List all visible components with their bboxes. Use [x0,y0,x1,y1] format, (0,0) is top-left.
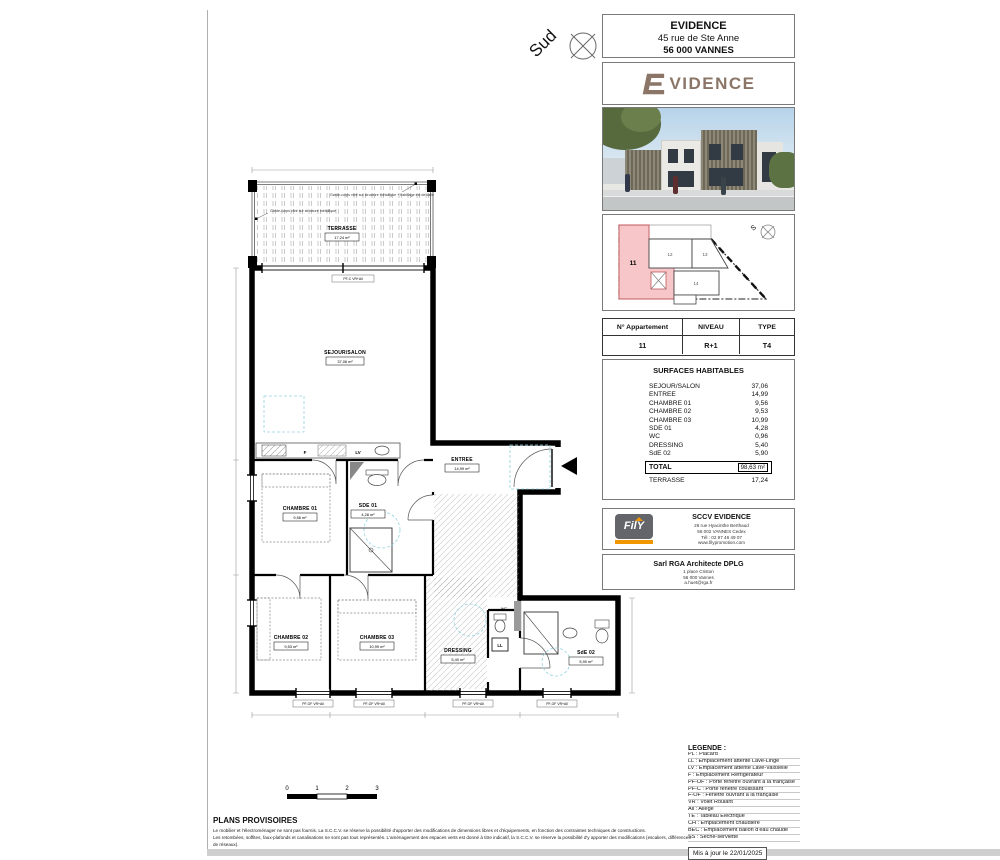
total-value: 98,63 m² [738,463,768,472]
svg-text:S: S [750,224,758,233]
developer-block: FilY SCCV EVIDENCE 26 rue Hyacinthe Bert… [602,508,795,550]
legend-item: F : Emplacement Réfrigérateur [688,773,800,780]
duct-shaft [514,601,521,631]
svg-text:Sud: Sud [525,26,560,61]
legend-item: All : Allège [688,807,800,814]
svg-text:11: 11 [630,260,637,267]
legend-title: LEGENDE : [688,745,800,752]
fily-logo-word: FilY [624,520,644,532]
apartment-level: R+1 [683,336,740,354]
key-plan-unit-13 [692,239,728,268]
surface-area: 9,56 [755,400,768,408]
photo-person [673,176,678,194]
surface-area: 14,99 [751,391,768,399]
svg-text:PF-C VR+All: PF-C VR+All [343,277,363,281]
photo-white-block [661,140,701,192]
svg-text:Garde-corps vitré sur structur: Garde-corps vitré sur structure métalliq… [330,193,434,197]
room-label-sejour: SEJOUR/SALON 37,06 m² [324,350,366,365]
surface-room: CHAMBRE 01 [649,400,691,408]
room-label-sde2: SdE 02 5,90 m² [569,650,603,665]
legend-item: LV : Emplacement attente Lave-Vaisselle [688,766,800,773]
surface-room: WC [649,433,660,441]
svg-text:9,53 m²: 9,53 m² [284,644,298,649]
project-address-line2: 56 000 VANNES [603,45,794,56]
disclaimer-title: PLANS PROVISOIRES [213,816,691,825]
architect-name: Sarl RGA Architecte DPLG [603,559,794,568]
evidence-logo: VIDENCE [602,62,795,105]
svg-text:2: 2 [345,786,349,792]
svg-text:LV: LV [355,450,360,455]
total-label: TOTAL [649,464,672,471]
room-label-sde1: SDE 01 4,28 m² [351,503,385,518]
surface-room: SdE 02 [649,450,671,458]
svg-text:13: 13 [702,252,708,257]
legend: LEGENDE : PL : Placard LL : Emplacement … [688,745,800,860]
wc-label: WC [501,606,508,611]
legend-item: LL : Emplacement attente Lave-Linge [688,759,800,766]
disclaimer-line: Les retombées, soffites, faux-plafonds e… [213,834,691,848]
surface-area: 9,53 [755,408,768,416]
key-plan-compass-icon: S [750,224,775,239]
svg-text:PF-OF VR+All: PF-OF VR+All [546,702,568,706]
updated-date-badge: Mis à jour le 22/01/2025 [688,847,767,860]
apartment-number: 11 [603,336,683,354]
fily-logo: FilY [615,514,655,544]
photo-person [625,174,630,192]
surface-row: DRESSING 5,40 [649,442,768,450]
terrasse-value: 17,24 [751,477,768,484]
surface-row: SDE 01 4,28 [649,425,768,433]
surface-room: CHAMBRE 03 [649,417,691,425]
dressing-hatch [426,578,487,691]
terrace: TERRASSE 17,24 m² Garde-corps vitré sur … [248,180,436,268]
sde2-fixtures [524,612,609,654]
svg-text:PF-OF VR+All: PF-OF VR+All [302,702,324,706]
svg-text:DRESSING: DRESSING [444,648,472,654]
svg-text:9,56 m²: 9,56 m² [293,515,307,520]
surface-row: CHAMBRE 01 9,56 [649,400,768,408]
surfaces-title: SURFACES HABITABLES [603,366,794,375]
svg-text:CHAMBRE 03: CHAMBRE 03 [360,635,395,641]
svg-text:0: 0 [285,786,289,792]
entry-door [510,445,562,489]
kitchen: F LV [256,443,400,458]
svg-text:PF-OF VR+All: PF-OF VR+All [462,702,484,706]
surface-row: CHAMBRE 03 10,99 [649,417,768,425]
surface-area: 0,96 [755,433,768,441]
apartment-type: T4 [740,336,794,354]
bay-label: PF-C VR+All [332,275,374,282]
svg-text:TERRASSE: TERRASSE [328,226,357,232]
legend-item: PL : Placard [688,752,800,759]
legend-item: PF-C : Porte fenêtre coulissant [688,787,800,794]
svg-text:12: 12 [667,252,673,257]
fily-logo-bar [615,540,653,544]
developer-name: SCCV EVIDENCE [655,512,788,521]
sde1-fixtures [350,470,392,572]
apartment-table: N° Appartement NIVEAU TYPE 11 R+1 T4 [602,318,795,356]
legend-item: PF-OF : Porte fenêtre ouvrant à la franç… [688,780,800,787]
svg-text:F: F [304,450,307,455]
surfaces-table: SURFACES HABITABLES SEJOUR/SALON 37,06 E… [602,359,795,500]
photo-person [721,177,726,195]
svg-text:14,99 m²: 14,99 m² [454,466,470,471]
surface-area: 5,90 [755,450,768,458]
photo-hedge [769,152,795,188]
surface-row: ENTREE 14,99 [649,391,768,399]
photo-road [603,196,795,211]
surface-row: CHAMBRE 02 9,53 [649,408,768,416]
legend-item: F-OF : Fenêtre ouvrant à la française [688,793,800,800]
svg-text:SDE 01: SDE 01 [359,503,377,509]
surface-room: DRESSING [649,442,683,450]
svg-text:LL: LL [497,643,503,648]
floor-plan: Sud TERRASSE 17,24 m² Garde-corps vitré … [0,0,1000,857]
legend-item: SS : Sèche-serviette [688,835,800,842]
surface-row: WC 0,96 [649,433,768,441]
surfaces-total-row: TOTAL 98,63 m² [645,461,772,474]
room-label-chambre1: CHAMBRE 01 9,56 m² [283,506,318,521]
room-label-chambre3: CHAMBRE 03 10,99 m² [360,635,395,650]
svg-text:SEJOUR/SALON: SEJOUR/SALON [324,350,366,356]
svg-text:SdE 02: SdE 02 [577,650,595,656]
evidence-logo-word: VIDENCE [669,74,755,94]
developer-website: www.filypromotion.com [655,540,788,546]
legend-item: VR : Volet Roulant [688,800,800,807]
surface-room: SDE 01 [649,425,672,433]
svg-text:CHAMBRE 02: CHAMBRE 02 [274,635,309,641]
surface-row: SdE 02 5,90 [649,450,768,458]
south-compass-icon: Sud [525,26,596,61]
surface-area: 37,06 [751,383,768,391]
architect-email: a.huet@rga.fr [603,580,794,586]
svg-text:3: 3 [375,786,379,792]
surface-room: SEJOUR/SALON [649,383,700,391]
room-label-chambre2: CHAMBRE 02 9,53 m² [274,635,309,650]
project-address-block: EVIDENCE 45 rue de Ste Anne 56 000 VANNE… [602,14,795,58]
room-label-entree: ENTREE 14,99 m² [445,457,479,472]
apartment-header-number: N° Appartement [603,319,683,336]
surface-row: SEJOUR/SALON 37,06 [649,383,768,391]
surface-room: ENTREE [649,391,676,399]
svg-text:ENTREE: ENTREE [451,457,473,463]
svg-text:CHAMBRE 01: CHAMBRE 01 [283,506,318,512]
surface-area: 4,28 [755,425,768,433]
evidence-logo-icon [641,72,665,96]
scale-bar: 0 1 2 3 [285,786,379,799]
svg-text:14: 14 [693,281,699,286]
terrasse-label: TERRASSE [649,477,685,484]
key-plan-core [651,272,666,289]
project-name: EVIDENCE [603,20,794,32]
terrace-label: TERRASSE 17,24 m² [325,226,359,241]
shaft-triangle [350,462,364,480]
legend-item: TE : Tableau Electrique [688,814,800,821]
svg-text:37,06 m²: 37,06 m² [337,359,353,364]
entrance-arrow-icon [561,457,577,475]
svg-text:5,40 m²: 5,40 m² [451,657,465,662]
svg-text:5,90 m²: 5,90 m² [579,659,593,664]
svg-text:10,99 m²: 10,99 m² [369,644,385,649]
disclaimer: PLANS PROVISOIRES Le mobilier et l'élect… [213,816,691,848]
project-address-line1: 45 rue de Ste Anne [603,33,794,44]
legend-item: BEC : Emplacement ballon d'eau chaude [688,828,800,835]
photo-wood-wing-left [625,150,661,192]
svg-text:Garde-corps vitré sur structur: Garde-corps vitré sur structure métalliq… [270,209,336,213]
disclaimer-line: Le mobilier et l'électroménager ne sont … [213,827,691,834]
building-photo [602,107,795,211]
washer-box: LL [492,638,508,651]
wc-fixture [494,614,506,632]
apartment-header-type: TYPE [740,319,794,336]
svg-text:PF-OF VR+All: PF-OF VR+All [363,702,385,706]
key-plan: 11 12 13 14 S [602,214,795,311]
architect-block: Sarl RGA Architecte DPLG 1 place Criston… [602,554,795,590]
legend-item: CH : Emplacement chaudière [688,821,800,828]
apartment-header-level: NIVEAU [683,319,740,336]
surfaces-terrasse-row: TERRASSE 17,24 [649,477,768,484]
surface-room: CHAMBRE 02 [649,408,691,416]
svg-text:1: 1 [315,786,319,792]
photo-wood-block [701,130,757,192]
fily-logo-roof-icon [635,517,643,521]
svg-text:17,24 m²: 17,24 m² [334,235,350,240]
surface-area: 10,99 [751,417,768,425]
svg-text:4,28 m²: 4,28 m² [361,512,375,517]
surface-area: 5,40 [755,442,768,450]
room-label-dressing: DRESSING 5,40 m² [441,648,475,663]
